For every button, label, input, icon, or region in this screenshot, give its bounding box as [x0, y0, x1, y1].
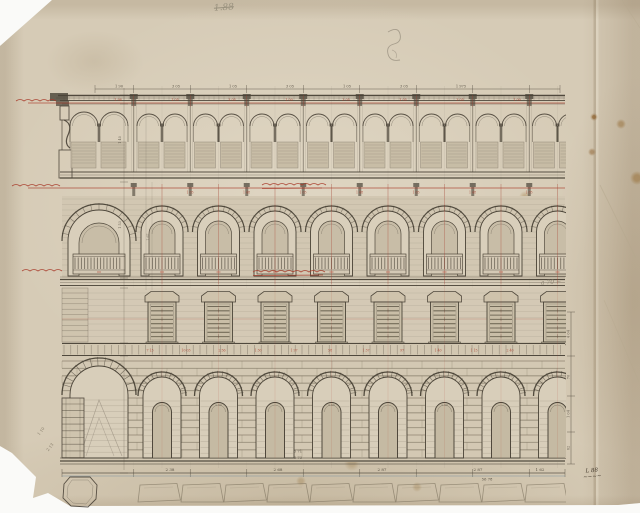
signature-mark: L 88~~~~ [583, 468, 602, 481]
pencil-number-note: 1.88 [214, 3, 235, 14]
signature-line2: ~~~~ [583, 473, 602, 481]
svg-text:4 04: 4 04 [567, 329, 571, 338]
scanned-drawing-sheet: 1 903 051 053 051 053 051 9751 981 053 0… [0, 0, 640, 513]
margin-marks: 4 04701 0462 [0, 0, 640, 513]
svg-text:1 04: 1 04 [567, 409, 571, 418]
svg-text:62: 62 [567, 446, 571, 450]
svg-text:70: 70 [567, 374, 571, 379]
pencil-scale-note: a 70 ~ [541, 279, 561, 286]
